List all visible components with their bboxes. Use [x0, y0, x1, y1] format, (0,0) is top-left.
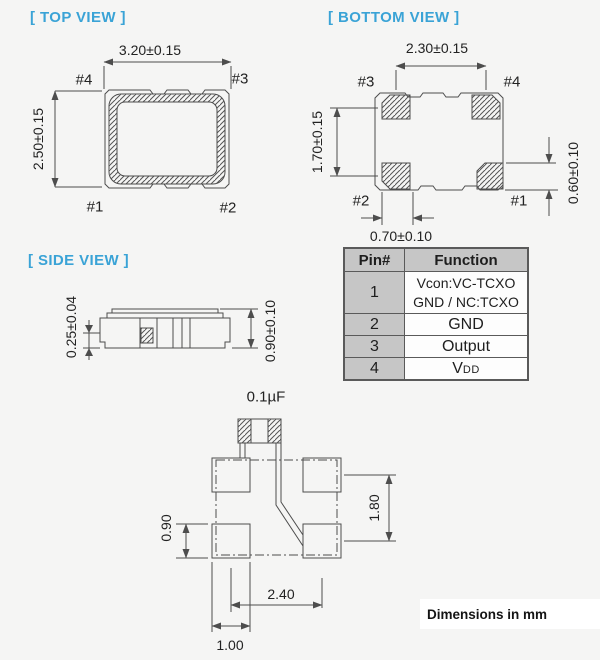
side-view-terminal-dim: 0.25±0.04 [63, 296, 79, 358]
land-vertical-pitch-dim: 1.80 [366, 494, 382, 521]
table-header-function: Function [405, 249, 527, 271]
side-view-drawing [83, 309, 258, 360]
top-view-title: [ TOP VIEW ] [30, 9, 126, 26]
pin-number: 3 [345, 336, 405, 357]
capacitor-value-label: 0.1µF [247, 389, 286, 406]
table-row: 3 Output [345, 335, 527, 357]
pin1-function-line1: Vcon:VC-TCXO [417, 274, 516, 292]
bottom-view-pin2-label: #2 [353, 193, 370, 210]
pin-number: 1 [345, 272, 405, 313]
side-view-height-dim: 0.90±0.10 [262, 300, 278, 362]
pin-function-table: Pin# Function 1 Vcon:VC-TCXO GND / NC:TC… [343, 247, 529, 381]
land-horizontal-pitch-dim: 2.40 [267, 586, 294, 602]
side-view-title: [ SIDE VIEW ] [28, 252, 129, 269]
table-header-row: Pin# Function [345, 249, 527, 271]
dimensions-unit-note: Dimensions in mm [420, 599, 600, 629]
datasheet-drawing-page: [ TOP VIEW ] [ BOTTOM VIEW ] [ SIDE VIEW… [0, 0, 600, 660]
top-view-pin4-label: #4 [76, 72, 93, 89]
bottom-view-height-dim: 1.70±0.15 [309, 111, 325, 173]
bottom-view-pad-height-dim: 0.60±0.10 [565, 142, 581, 204]
table-header-pin: Pin# [345, 249, 405, 271]
top-view-pin2-label: #2 [220, 200, 237, 217]
land-pad-height-dim: 0.90 [158, 514, 174, 541]
bottom-view-title: [ BOTTOM VIEW ] [328, 9, 460, 26]
table-row: 4 V DD [345, 357, 527, 379]
top-view-pin3-label: #3 [232, 71, 249, 88]
bottom-view-pin1-label: #1 [511, 193, 528, 210]
top-view-pin1-label: #1 [87, 199, 104, 216]
bottom-view-pin3-label: #3 [358, 74, 375, 91]
top-view-width-dim: 3.20±0.15 [119, 42, 181, 58]
top-view-height-dim: 2.50±0.15 [30, 108, 46, 170]
pin-number: 2 [345, 314, 405, 335]
pin1-function-line2: GND / NC:TCXO [413, 293, 519, 311]
pin-number: 4 [345, 358, 405, 379]
bottom-view-pad-width-dim: 0.70±0.10 [370, 228, 432, 244]
table-row: 2 GND [345, 313, 527, 335]
land-pad-width-dim: 1.00 [216, 637, 243, 653]
pin4-function: V DD [452, 360, 480, 378]
pin2-function: GND [405, 314, 527, 335]
bottom-view-pin4-label: #4 [504, 74, 521, 91]
pin3-function: Output [405, 336, 527, 357]
bottom-view-width-dim: 2.30±0.15 [406, 40, 468, 56]
table-row: 1 Vcon:VC-TCXO GND / NC:TCXO [345, 271, 527, 313]
